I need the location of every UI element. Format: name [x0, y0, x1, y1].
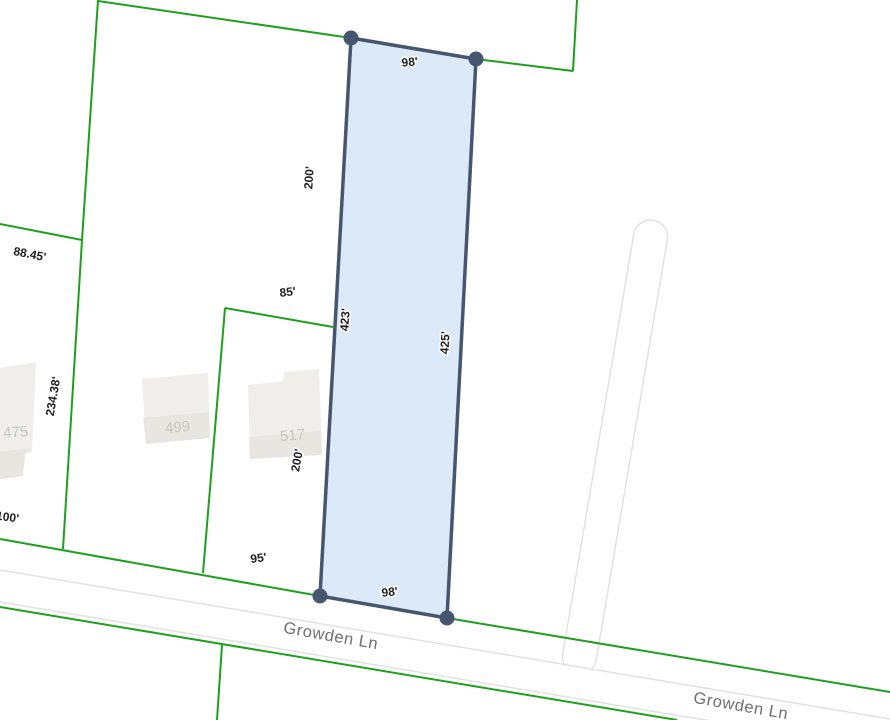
parcel-vertex-handle-se[interactable]: [440, 611, 455, 626]
boundary-line-northeast: [573, 0, 577, 71]
dimension-label-200-upper: 200': [301, 166, 317, 190]
building-label-499: 499: [164, 418, 190, 437]
dimension-label-88-45: 88.45': [12, 244, 47, 264]
dimension-label-95: 95': [249, 550, 267, 566]
dimension-label-98-top: 98': [401, 54, 419, 69]
boundary-line-85: [225, 308, 333, 327]
parcel-vertex-handle-nw[interactable]: [344, 31, 359, 46]
dimension-label-234-38: 234.38': [43, 375, 64, 417]
boundary-line-west: [63, 0, 98, 549]
dimension-label-98-bottom: 98': [381, 584, 399, 600]
parcel-vertex-handle-ne[interactable]: [469, 52, 484, 67]
parcel-vertex-handle-sw[interactable]: [313, 589, 328, 604]
dimension-label-425: 425': [437, 331, 452, 355]
map-viewport[interactable]: 98' 200' 85' 88.45' 423' 425' 234.38' 10…: [0, 0, 890, 720]
road-side-street: [560, 217, 670, 676]
parcel-map-canvas[interactable]: 98' 200' 85' 88.45' 423' 425' 234.38' 10…: [0, 0, 890, 720]
dimension-label-85: 85': [279, 284, 297, 300]
boundary-line-88-45: [0, 224, 82, 240]
boundary-line-road-south: [0, 607, 677, 720]
boundary-line-north: [98, 1, 573, 71]
building-label-517: 517: [279, 426, 305, 445]
dimension-label-100: 100': [0, 509, 20, 526]
building-label-475: 475: [3, 423, 29, 442]
boundary-line-mid: [203, 308, 225, 573]
dimension-label-423: 423': [337, 308, 353, 332]
dimension-label-200-lower: 200': [288, 448, 306, 473]
boundary-line-south-parcel: [217, 645, 222, 720]
